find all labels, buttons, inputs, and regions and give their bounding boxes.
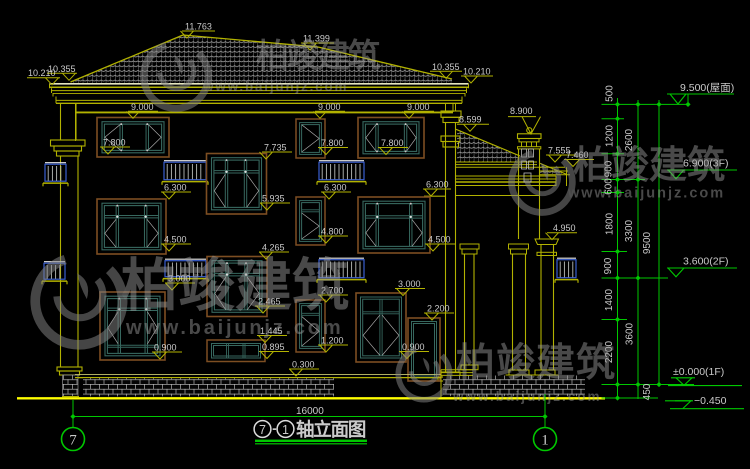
svg-text:9.000: 9.000	[131, 102, 154, 112]
svg-text:柏竣建筑: 柏竣建筑	[121, 254, 349, 318]
svg-text:0.895: 0.895	[262, 342, 285, 352]
svg-text:4.265: 4.265	[262, 243, 285, 253]
svg-text:−0.450: −0.450	[694, 395, 727, 407]
svg-text:9.000: 9.000	[318, 102, 341, 112]
svg-text:7.800: 7.800	[381, 138, 404, 148]
svg-text:900: 900	[603, 257, 614, 274]
svg-text:4.500: 4.500	[164, 235, 187, 245]
svg-text:柏竣建筑: 柏竣建筑	[573, 145, 725, 187]
svg-text:450: 450	[642, 383, 653, 400]
svg-text:www.baijunjz.com: www.baijunjz.com	[202, 79, 348, 94]
svg-text:±0.000(1F): ±0.000(1F)	[673, 366, 724, 378]
svg-text:7.735: 7.735	[264, 143, 287, 153]
svg-text:柏竣建筑: 柏竣建筑	[256, 37, 381, 74]
svg-text:0.900: 0.900	[154, 343, 177, 353]
svg-text:4.950: 4.950	[553, 223, 576, 233]
svg-text:6.300: 6.300	[426, 180, 449, 190]
svg-text:7.800: 7.800	[321, 138, 344, 148]
svg-text:www.baijunjz.com: www.baijunjz.com	[567, 186, 725, 202]
svg-text:6.300: 6.300	[324, 183, 347, 193]
svg-text:9.500(屋面): 9.500(屋面)	[680, 82, 734, 94]
svg-text:0.300: 0.300	[292, 360, 315, 370]
svg-text:www.baijunjz.com: www.baijunjz.com	[125, 317, 343, 339]
svg-text:4.500: 4.500	[428, 235, 451, 245]
svg-text:6.300: 6.300	[164, 183, 187, 193]
svg-text:9.000: 9.000	[407, 102, 430, 112]
svg-text:1: 1	[282, 423, 289, 437]
svg-text:9500: 9500	[642, 231, 653, 254]
svg-text:500: 500	[605, 85, 616, 102]
svg-text:16000: 16000	[296, 406, 324, 417]
svg-text:10.210: 10.210	[28, 68, 56, 78]
svg-text:3.600(2F): 3.600(2F)	[683, 256, 729, 268]
svg-text:10.210: 10.210	[463, 67, 491, 77]
svg-text:8.900: 8.900	[510, 106, 533, 116]
svg-text:7.800: 7.800	[103, 138, 126, 148]
svg-text:8.599: 8.599	[459, 115, 482, 125]
svg-text:2.200: 2.200	[427, 304, 450, 314]
svg-text:3.000: 3.000	[398, 279, 421, 289]
svg-text:柏竣建筑: 柏竣建筑	[456, 342, 616, 385]
svg-text:11.763: 11.763	[185, 22, 212, 32]
svg-text:4.800: 4.800	[321, 227, 344, 237]
svg-text:5.935: 5.935	[262, 194, 285, 204]
svg-text:3600: 3600	[625, 322, 636, 345]
svg-text:7: 7	[69, 433, 77, 449]
svg-text:1: 1	[541, 433, 549, 449]
svg-text:1800: 1800	[605, 212, 616, 235]
svg-text:轴立面图: 轴立面图	[296, 419, 366, 440]
svg-text:1400: 1400	[604, 288, 615, 311]
svg-text:3300: 3300	[624, 219, 635, 242]
svg-text:www.baijunjz.com: www.baijunjz.com	[452, 389, 602, 404]
svg-text:1200: 1200	[605, 124, 616, 147]
svg-text:7: 7	[259, 423, 266, 437]
svg-text:10.355: 10.355	[432, 62, 460, 72]
